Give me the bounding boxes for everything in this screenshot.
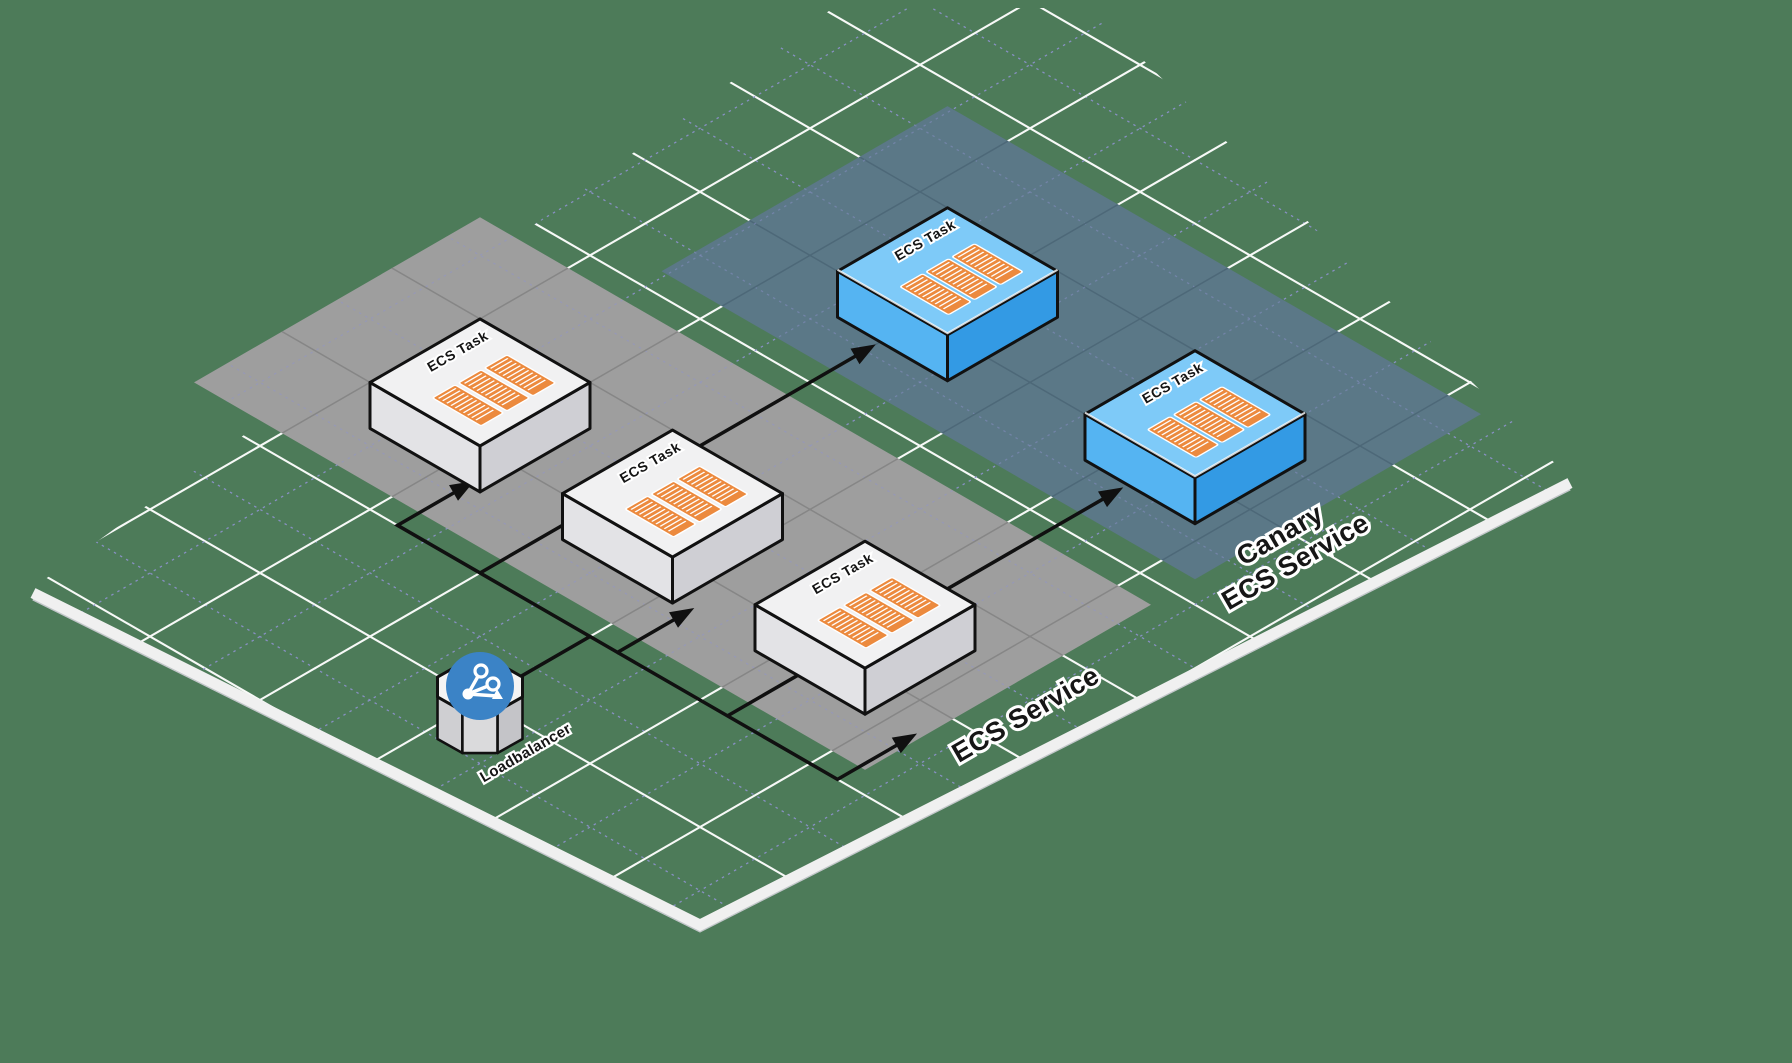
loadbalancer-icon [446, 652, 514, 720]
isometric-diagram: ECS TaskECS TaskECS TaskECS TaskECS Task… [0, 0, 1792, 1063]
isometric-diagram-stage: ECS TaskECS TaskECS TaskECS TaskECS Task… [0, 0, 1792, 1063]
